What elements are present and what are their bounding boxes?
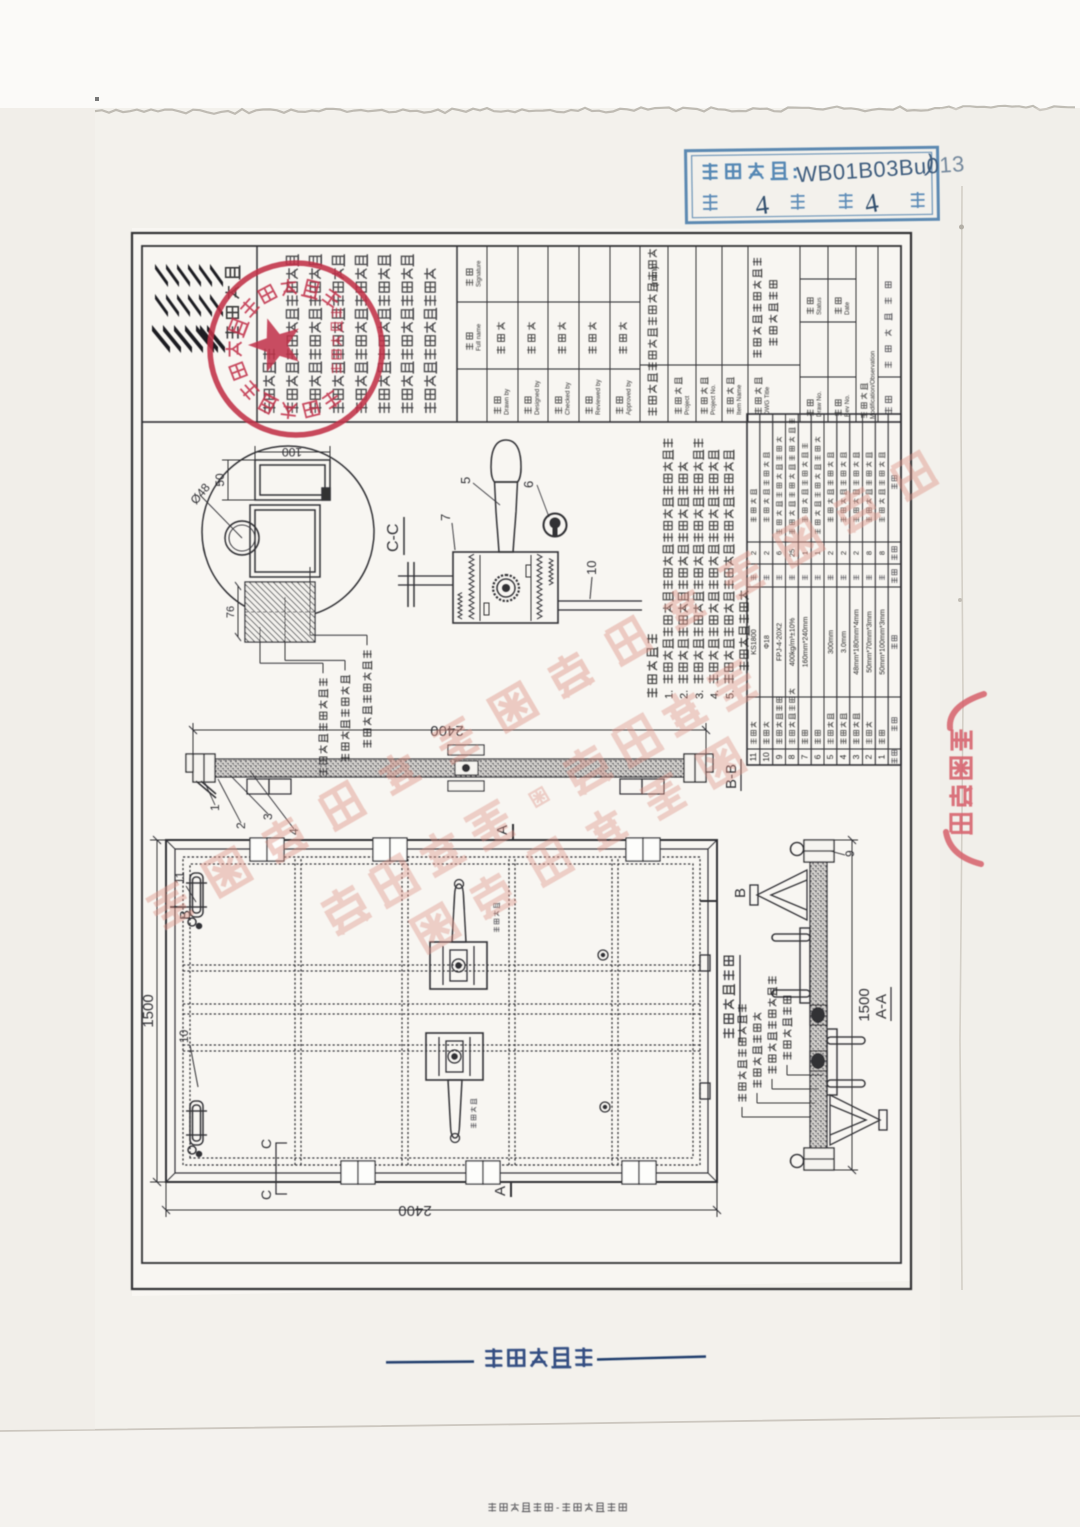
svg-text:9: 9 (774, 754, 784, 759)
svg-text:4: 4 (838, 754, 848, 759)
svg-text:76: 76 (225, 606, 237, 618)
svg-text:400kg/m³±10%: 400kg/m³±10% (787, 617, 796, 666)
svg-text:100: 100 (282, 445, 302, 459)
svg-text:160mm*240mm: 160mm*240mm (800, 617, 809, 668)
svg-text:Designed by: Designed by (534, 380, 541, 415)
svg-text:Draw No.: Draw No. (816, 391, 823, 417)
svg-text:1500: 1500 (140, 994, 157, 1027)
svg-text:KS1800: KS1800 (749, 629, 758, 655)
svg-text:3.0mm: 3.0mm (839, 631, 848, 653)
svg-text:1: 1 (877, 754, 887, 759)
svg-text:FPJ-4-20X2: FPJ-4-20X2 (775, 623, 784, 661)
svg-text:Checked by: Checked by (565, 381, 572, 415)
svg-text:2: 2 (826, 551, 835, 555)
svg-text:10: 10 (761, 752, 771, 762)
svg-text:5: 5 (825, 754, 835, 759)
svg-text:Full name: Full name (476, 323, 483, 351)
svg-text:6: 6 (812, 754, 822, 759)
svg-text:-: - (556, 1503, 559, 1514)
svg-text:A-A: A-A (873, 994, 890, 1019)
svg-text:Φ18: Φ18 (762, 635, 771, 649)
svg-text:1: 1 (208, 804, 222, 811)
svg-text:3: 3 (851, 754, 861, 759)
svg-text:8: 8 (865, 551, 874, 555)
svg-text:9: 9 (843, 850, 857, 857)
svg-text:B: B (732, 888, 749, 898)
svg-text:10: 10 (177, 1029, 191, 1043)
svg-text:Item Name: Item Name (736, 384, 743, 415)
svg-text:(mm): (mm) (649, 266, 659, 287)
svg-text:50mm*100mm*3mm: 50mm*100mm*3mm (877, 609, 886, 675)
svg-text:7: 7 (438, 514, 453, 521)
svg-text:Status: Status (816, 297, 823, 315)
svg-text:48mm*180mm*4mm: 48mm*180mm*4mm (852, 609, 861, 675)
svg-text:11: 11 (748, 752, 758, 761)
svg-text:50: 50 (213, 473, 227, 487)
svg-text:Signature: Signature (476, 260, 483, 287)
svg-text:C-C: C-C (385, 524, 402, 552)
svg-text:6: 6 (521, 481, 536, 488)
svg-text:C: C (258, 1190, 274, 1200)
svg-text:3.: 3. (694, 690, 706, 699)
svg-text:2: 2 (762, 551, 771, 555)
svg-text:2: 2 (839, 551, 848, 555)
svg-text:DWG Title: DWG Title (764, 386, 771, 415)
svg-text:300mm: 300mm (826, 630, 835, 654)
svg-text:Project No.: Project No. (710, 384, 717, 415)
svg-text:A: A (492, 1186, 509, 1196)
svg-text:1500: 1500 (856, 988, 873, 1021)
svg-text:7: 7 (800, 754, 810, 759)
svg-text:2400: 2400 (398, 1202, 431, 1219)
svg-text:Drawn by: Drawn by (504, 388, 511, 415)
svg-text:3: 3 (261, 813, 275, 820)
svg-text:Modification/Observation: Modification/Observation (870, 350, 877, 419)
svg-text:2: 2 (852, 551, 861, 555)
svg-text:50mm*70mm*3mm: 50mm*70mm*3mm (864, 611, 873, 673)
svg-text:C: C (258, 1139, 274, 1149)
svg-text:Reviewed by: Reviewed by (595, 379, 602, 415)
svg-text:2: 2 (234, 822, 248, 829)
svg-text:Approved by: Approved by (626, 379, 633, 415)
svg-text:Date: Date (844, 301, 851, 315)
svg-text:5: 5 (458, 477, 473, 484)
svg-text:2: 2 (864, 754, 874, 759)
svg-text:10: 10 (584, 561, 599, 575)
svg-text:Project: Project (684, 395, 691, 415)
svg-text:8: 8 (877, 551, 886, 555)
svg-text:8: 8 (787, 754, 797, 759)
